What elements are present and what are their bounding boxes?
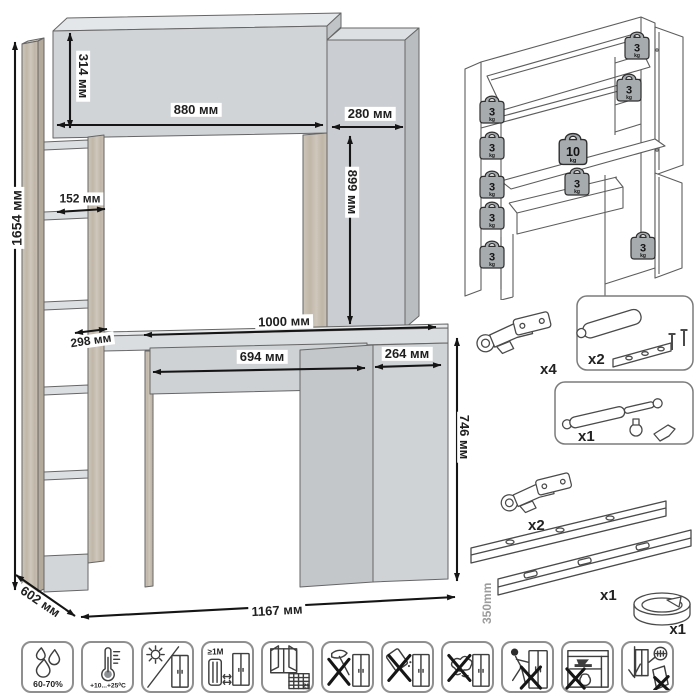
svg-text:≥1М: ≥1М xyxy=(207,648,223,657)
care-icon-ventilation: 21 xyxy=(261,641,314,693)
weight: 3kg xyxy=(480,132,504,159)
care-icon-no-direct-sunlight xyxy=(141,641,194,693)
care-icon-humidity: 60-70% xyxy=(21,641,74,693)
svg-text:kg: kg xyxy=(489,262,495,268)
dim-hutch-height: 314 мм xyxy=(76,51,90,102)
dim-drawer-width: 694 мм xyxy=(237,350,288,364)
axe-cabinet-icon xyxy=(325,644,371,690)
hinges-bottom: x2 xyxy=(498,472,575,534)
hinges-top: x4 xyxy=(473,311,557,378)
svg-text:60-70%: 60-70% xyxy=(33,679,63,689)
load-capacity-sketch: 3kg 3kg 3kg 3kg 3kg 3kg 3kg 10kg 3kg 3kg xyxy=(455,5,700,300)
gas-lift-qty: x1 xyxy=(578,428,595,445)
svg-text:kg: kg xyxy=(489,153,495,159)
svg-text:kg: kg xyxy=(626,95,632,101)
dim-top-cabinet-height: 899 мм xyxy=(345,167,359,218)
grommet-qty: x1 xyxy=(669,621,686,636)
dampers-qty: x2 xyxy=(588,351,605,368)
slides-qty: x1 xyxy=(600,587,617,604)
dim-total-width: 1167 мм xyxy=(248,602,306,619)
slide-length: 350mm xyxy=(480,583,494,624)
hardware-list: x4 x2 x1 x2 xyxy=(440,290,700,636)
window-calendar-icon: 21 xyxy=(265,644,311,690)
hutch xyxy=(53,13,341,138)
furniture-front-view xyxy=(0,0,478,640)
svg-text:kg: kg xyxy=(640,253,646,259)
thermometer-icon: +10...+25⁰С xyxy=(85,644,131,690)
care-icon-temperature: +10...+25⁰С xyxy=(81,641,134,693)
sun-slash-cabinet-icon xyxy=(145,644,191,690)
svg-text:kg: kg xyxy=(489,117,495,123)
cable-grommet: x1 xyxy=(634,593,690,636)
dim-upper-shelf-depth: 152 мм xyxy=(56,192,103,205)
person-dragging-cabinet-icon xyxy=(505,644,551,690)
svg-text:kg: kg xyxy=(574,189,580,195)
dim-desktop-width: 1000 мм xyxy=(255,314,313,330)
weight: 3kg xyxy=(617,74,641,101)
weight: 3kg xyxy=(480,202,504,229)
care-icon-no-sharp-tools xyxy=(321,641,374,693)
dim-total-height: 1654 мм xyxy=(9,187,24,249)
care-icon-no-wet-cleaning xyxy=(441,641,494,693)
door-dampers: x2 xyxy=(575,296,693,370)
svg-text:21: 21 xyxy=(303,684,309,690)
hinges-top-qty: x4 xyxy=(540,361,557,378)
weight-desktop: 10kg xyxy=(559,134,587,165)
care-icon-no-dragging xyxy=(501,641,554,693)
svg-text:10: 10 xyxy=(566,145,580,159)
care-icon-no-abrasives xyxy=(381,641,434,693)
abrasive-powder-cabinet-icon xyxy=(385,644,431,690)
weight: 3kg xyxy=(480,171,504,198)
care-icon-fix-to-wall xyxy=(621,641,674,693)
dim-desk-height: 746 мм xyxy=(457,412,471,463)
care-icon-row: 60-70% +10...+25⁰С ≥1М xyxy=(21,641,674,693)
dim-door-width: 264 мм xyxy=(382,347,433,361)
svg-text:kg: kg xyxy=(489,223,495,229)
overload-cabinet-icon xyxy=(565,644,611,690)
gas-lift: x1 xyxy=(555,382,693,445)
svg-text:+10...+25⁰С: +10...+25⁰С xyxy=(90,682,126,690)
weight: 3kg xyxy=(480,241,504,268)
radiator-distance-icon: ≥1М xyxy=(205,644,251,690)
svg-text:kg: kg xyxy=(634,53,640,59)
wall-anchor-icon xyxy=(625,644,671,690)
svg-text:kg: kg xyxy=(489,192,495,198)
dim-top-cabinet-width: 280 мм xyxy=(345,107,396,121)
svg-text:kg: kg xyxy=(570,158,577,164)
main-dimension-drawing: 1654 мм 314 мм 880 мм 280 мм 899 мм 152 … xyxy=(0,0,478,640)
care-icon-radiator-distance: ≥1М xyxy=(201,641,254,693)
wet-cloth-cabinet-icon xyxy=(445,644,491,690)
dim-hutch-width: 880 мм xyxy=(171,103,222,117)
humidity-icon: 60-70% xyxy=(25,644,71,690)
care-icon-no-overload xyxy=(561,641,614,693)
